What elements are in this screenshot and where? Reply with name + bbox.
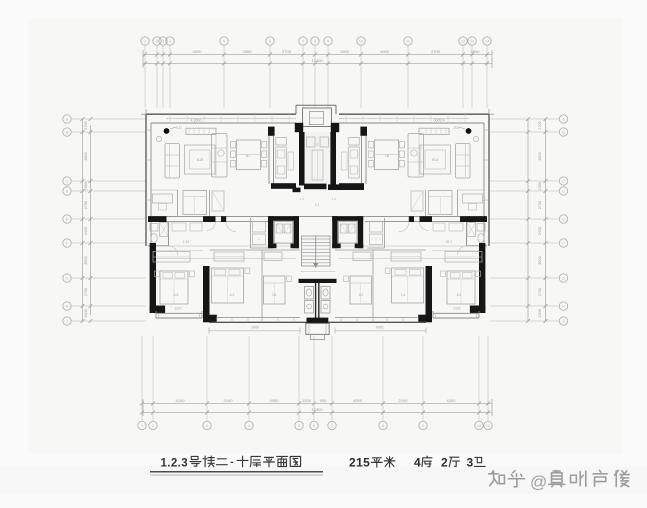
svg-text:@: @	[530, 473, 547, 492]
svg-text:4: 4	[169, 40, 171, 44]
svg-text:B1: B1	[385, 154, 389, 158]
svg-text:4050: 4050	[270, 398, 280, 403]
svg-text:14: 14	[485, 40, 489, 44]
svg-text:10: 10	[359, 40, 363, 44]
svg-text:-: -	[230, 456, 234, 468]
svg-text:2: 2	[152, 424, 154, 428]
svg-text:E: E	[562, 218, 565, 222]
svg-text:17400: 17400	[311, 407, 323, 412]
svg-text:10: 10	[477, 424, 481, 428]
svg-text:3500: 3500	[538, 256, 542, 264]
svg-text:215: 215	[349, 456, 370, 470]
svg-text:X: X	[375, 238, 377, 242]
svg-text:G: G	[66, 277, 69, 281]
svg-text:C: C	[562, 180, 565, 184]
svg-text:B: B	[66, 131, 69, 135]
svg-text:4: 4	[414, 456, 421, 470]
svg-text:X: X	[258, 238, 260, 242]
svg-text:4.9500: 4.9500	[434, 119, 445, 123]
svg-text:G: G	[562, 277, 565, 281]
svg-text:2: 2	[441, 456, 448, 470]
svg-text:11: 11	[486, 424, 490, 428]
svg-text:3200: 3200	[174, 307, 181, 311]
svg-text:4800: 4800	[84, 152, 88, 160]
svg-text:3500: 3500	[84, 256, 88, 264]
svg-text:2400: 2400	[538, 227, 542, 235]
svg-text:3: 3	[467, 456, 474, 470]
svg-text:3300: 3300	[243, 49, 253, 54]
svg-text:E: E	[66, 218, 69, 222]
svg-text:9: 9	[422, 424, 424, 428]
svg-text:2.1: 2.1	[315, 203, 320, 207]
svg-text:1500: 1500	[538, 309, 542, 317]
svg-text:1: 1	[144, 40, 146, 44]
svg-text:4800: 4800	[471, 49, 481, 54]
svg-text:2700: 2700	[538, 288, 542, 296]
svg-text:6: 6	[269, 40, 271, 44]
svg-text:7: 7	[331, 424, 333, 428]
svg-text:3200: 3200	[453, 307, 460, 311]
svg-text:KZ1: KZ1	[453, 126, 459, 130]
svg-text:2700: 2700	[84, 288, 88, 296]
svg-text:2: 2	[317, 143, 319, 147]
svg-text:2900: 2900	[251, 326, 259, 330]
svg-text:H: H	[562, 305, 565, 309]
svg-text:2700: 2700	[84, 201, 88, 209]
svg-text:1500: 1500	[340, 49, 350, 54]
svg-text:9: 9	[327, 40, 329, 44]
svg-text:6.25: 6.25	[197, 158, 204, 162]
svg-text:2100: 2100	[399, 398, 409, 403]
svg-text:11: 11	[406, 40, 410, 44]
svg-text:5: 5	[223, 40, 225, 44]
svg-text:J: J	[563, 320, 565, 324]
svg-text:2700: 2700	[538, 201, 542, 209]
svg-text:4200: 4200	[447, 398, 457, 403]
svg-text:1000: 1000	[84, 182, 88, 190]
svg-text:KZ1: KZ1	[176, 126, 182, 130]
svg-text:4.5: 4.5	[457, 293, 462, 297]
svg-text:C: C	[66, 180, 69, 184]
svg-text:900: 900	[320, 398, 327, 403]
svg-text:B1: B1	[246, 154, 250, 158]
svg-text:3: 3	[162, 40, 164, 44]
svg-text:12: 12	[461, 40, 465, 44]
svg-text:2: 2	[156, 40, 158, 44]
svg-text:2400: 2400	[84, 227, 88, 235]
svg-text:5: 5	[298, 424, 300, 428]
svg-text:6: 6	[313, 424, 315, 428]
svg-text:8: 8	[382, 424, 384, 428]
svg-text:17400: 17400	[311, 58, 323, 63]
svg-text:2100: 2100	[431, 49, 441, 54]
svg-text:1.5: 1.5	[332, 197, 337, 201]
svg-text:1.5: 1.5	[300, 197, 305, 201]
svg-text:2700: 2700	[84, 121, 88, 129]
svg-text:4.2: 4.2	[401, 293, 406, 297]
svg-text:1500: 1500	[84, 309, 88, 317]
svg-text:2700: 2700	[538, 121, 542, 129]
svg-text:A: A	[66, 118, 69, 122]
svg-text:3: 3	[206, 424, 208, 428]
svg-text:1.35: 1.35	[183, 240, 189, 244]
svg-text:A: A	[562, 118, 565, 122]
svg-text:4: 4	[248, 424, 250, 428]
svg-text:H: H	[66, 305, 69, 309]
svg-text:4050: 4050	[380, 49, 390, 54]
svg-text:4.9500: 4.9500	[191, 119, 202, 123]
svg-text:13: 13	[470, 40, 474, 44]
svg-text:2700: 2700	[282, 49, 292, 54]
svg-text:2100: 2100	[224, 398, 234, 403]
svg-text:D: D	[562, 190, 565, 194]
svg-text:D: D	[66, 190, 69, 194]
svg-text:1.2.3: 1.2.3	[161, 458, 189, 470]
svg-text:4.2: 4.2	[230, 293, 235, 297]
svg-text:4800: 4800	[193, 49, 203, 54]
svg-text:4800: 4800	[538, 152, 542, 160]
svg-text:J: J	[66, 320, 68, 324]
svg-text:2900: 2900	[376, 326, 384, 330]
svg-text:6.25: 6.25	[432, 158, 439, 162]
svg-text:4.5: 4.5	[174, 293, 179, 297]
svg-text:3.6: 3.6	[272, 293, 277, 297]
svg-text:1200: 1200	[302, 398, 312, 403]
svg-text:8: 8	[314, 40, 316, 44]
svg-text:7: 7	[302, 40, 304, 44]
svg-text:1.35: 1.35	[446, 240, 452, 244]
svg-text:B: B	[562, 131, 565, 135]
svg-text:1000: 1000	[538, 182, 542, 190]
svg-text:1: 1	[141, 424, 143, 428]
svg-text:3.6: 3.6	[359, 293, 364, 297]
svg-text:4200: 4200	[176, 398, 186, 403]
svg-text:4050: 4050	[353, 398, 363, 403]
